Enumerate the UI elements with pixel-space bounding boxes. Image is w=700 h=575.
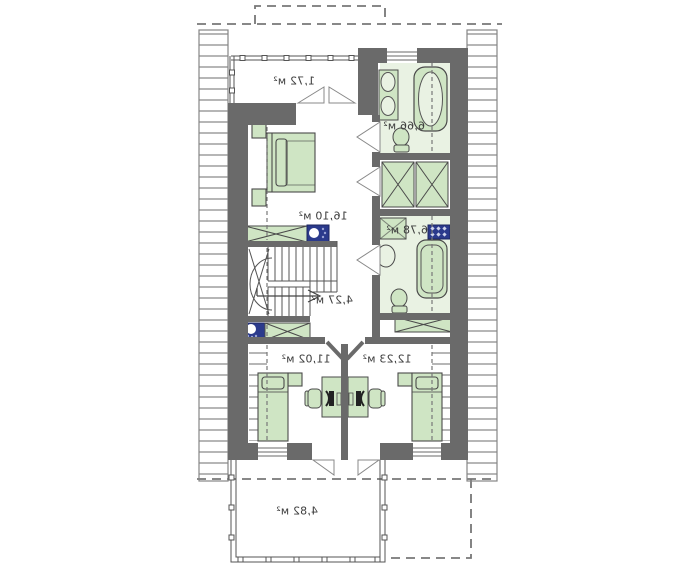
door-swing-balcony-top-left (298, 87, 324, 103)
door-swing-bathroom-mid (357, 245, 380, 275)
double-sink-icon (379, 70, 398, 120)
bed-icon (252, 121, 315, 206)
room-label-room-left: 11,02 м² (281, 353, 330, 366)
eave-hatch-right (467, 30, 497, 481)
desk-icon (348, 377, 368, 417)
room-label-bathroom-top: 6,66 м² (383, 120, 425, 133)
door-swing-terrace-right (358, 460, 379, 475)
vanity-icon (307, 225, 329, 242)
bed-icon (258, 373, 302, 441)
door-swing-bathroom-top (357, 122, 380, 152)
washer-tile-icon (428, 225, 450, 239)
desk-icon (322, 377, 342, 417)
bed-icon (398, 373, 442, 441)
room-label-room-right: 12,23 м² (362, 353, 411, 366)
window-top (387, 48, 417, 63)
room-label-balcony-top: 1,72 м² (273, 75, 315, 88)
floor-plan-drawing (0, 0, 700, 575)
wardrobe-icon (245, 226, 307, 242)
door-swing-closet (357, 167, 380, 196)
room-label-bedroom: 16,10 м² (298, 210, 347, 223)
eave-hatch-left (199, 30, 228, 481)
window-bottom-left (258, 443, 287, 460)
room-label-bathroom-mid: 6,78 м² (386, 224, 428, 237)
toilet-icon (391, 289, 407, 313)
wardrobe-icon (382, 162, 448, 207)
room-label-terrace: 4,82 м² (276, 505, 318, 518)
room-label-hall: 4,27 м² (311, 294, 353, 307)
door-swing-balcony-top-right (329, 87, 355, 103)
chair-icon (305, 389, 321, 408)
door-swing-terrace-left (313, 460, 334, 475)
chair-icon (369, 389, 385, 408)
window-bottom-right (413, 443, 441, 460)
floor-plan-canvas: 1,72 м² 6,66 м² 16,10 м² 6,78 м² 4,27 м²… (0, 0, 700, 575)
